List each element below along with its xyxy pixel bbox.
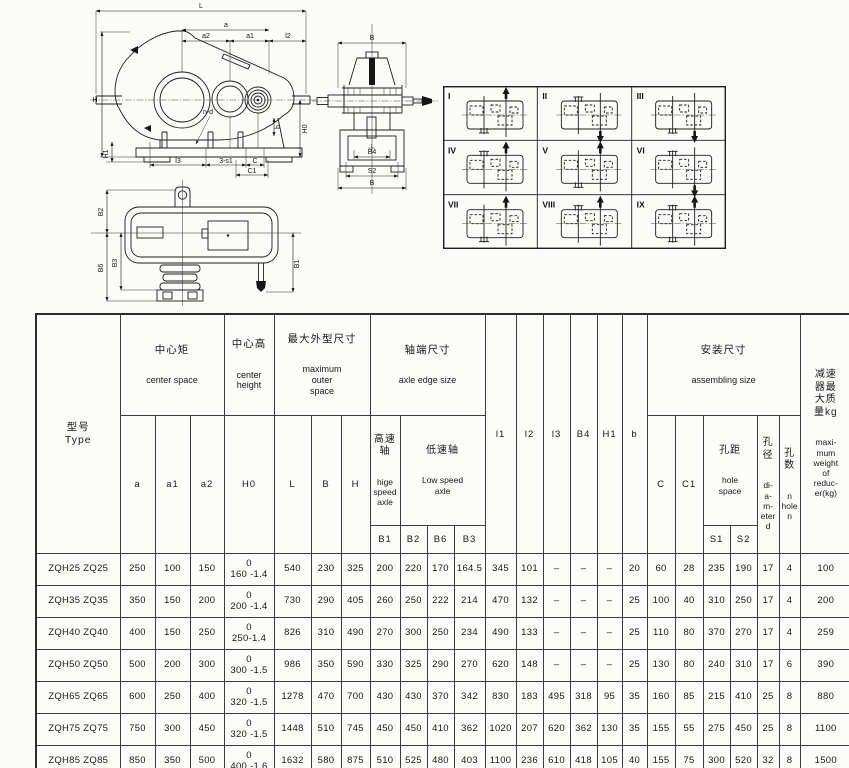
th-max-outer-zh: 最大外型尺寸 xyxy=(276,333,369,346)
th-axle-edge: 轴端尺寸 axle edge size xyxy=(370,314,485,415)
cell-a: 250 xyxy=(120,554,155,586)
cell-weight: 1100 xyxy=(800,714,849,746)
cell-n: 8 xyxy=(779,746,800,768)
shaft-arrow-icon xyxy=(599,203,602,208)
assembly-cell-shape xyxy=(699,216,707,222)
cell-s1: 310 xyxy=(703,586,730,618)
side-view-drawing: L a a2 a1 l2 H H1 H0 b n-d l3 3-s1 C C1 xyxy=(88,2,320,180)
dim-label-n-d: n-d xyxy=(203,109,213,116)
cell-l2: 101 xyxy=(516,554,543,586)
dim-label-B2: B2 xyxy=(98,208,105,217)
cell-h0: 0 200 -1.4 xyxy=(224,586,274,618)
assembly-cell-shape xyxy=(564,106,577,115)
cell-s1: 275 xyxy=(703,714,730,746)
th-C: C xyxy=(647,415,675,554)
cell-c1: 80 xyxy=(675,650,703,682)
assembly-cell-shape xyxy=(680,159,689,166)
cell-d: 25 xyxy=(757,682,779,714)
cell-c: 100 xyxy=(647,586,675,618)
th-h1: H1 xyxy=(597,314,622,554)
dim-label-B3: B3 xyxy=(112,259,119,268)
front-view-drawing: B B4 S2 B xyxy=(312,18,438,198)
cell-d: 17 xyxy=(757,554,779,586)
cell-l1: 1020 xyxy=(485,714,516,746)
cell-b6: 410 xyxy=(427,714,454,746)
shaft-arrow-icon xyxy=(693,185,696,190)
assembly-cell-shape xyxy=(498,116,512,125)
th-hole-diameter-en: di- a- m- eter d xyxy=(759,480,778,531)
cell-b2: 450 xyxy=(400,714,427,746)
cell-l1: 490 xyxy=(485,618,516,650)
th-assembling: 安装尺寸 assembling size xyxy=(647,314,800,415)
assembly-cell-shape xyxy=(680,105,689,112)
cell-b4: – xyxy=(570,554,597,586)
shaft-arrow-icon xyxy=(597,141,604,148)
cell-b2: 430 xyxy=(400,682,427,714)
dim-label-H: H xyxy=(92,97,97,104)
cell-s2: 520 xyxy=(730,746,757,768)
th-hole-count: 孔 数 n hole n xyxy=(779,415,800,554)
cell-b3: 270 xyxy=(454,650,485,682)
cell-a1: 300 xyxy=(155,714,190,746)
cell-B: 580 xyxy=(311,746,341,768)
assembly-cell-shape xyxy=(564,160,577,169)
th-center-height: 中心高 center height xyxy=(224,314,274,415)
cell-b2: 220 xyxy=(400,554,427,586)
cell-n: 8 xyxy=(779,714,800,746)
cell-b6: 222 xyxy=(427,586,454,618)
shaft-arrow-icon xyxy=(691,136,698,143)
cell-a: 500 xyxy=(120,650,155,682)
assembly-cell-shape xyxy=(592,225,606,234)
cell-n: 4 xyxy=(779,618,800,650)
cell-c1: 75 xyxy=(675,746,703,768)
cell-b6: 290 xyxy=(427,650,454,682)
cell-b: 25 xyxy=(622,650,647,682)
cell-s1: 300 xyxy=(703,746,730,768)
cell-l2: 148 xyxy=(516,650,543,682)
housing-outline xyxy=(115,31,294,140)
th-center-height-en: center height xyxy=(226,370,273,392)
assembly-cell-shape xyxy=(680,214,689,221)
th-low-speed-zh: 低速轴 xyxy=(402,445,484,458)
assembly-cell-shape xyxy=(491,214,500,221)
dim-label-B1: B1 xyxy=(294,260,301,269)
th-b3: B3 xyxy=(454,526,485,554)
cell-b1: 450 xyxy=(370,714,400,746)
shaft-arrow-icon xyxy=(693,203,696,208)
assembly-cell-label: IX xyxy=(637,200,645,210)
cell-c: 60 xyxy=(647,554,675,586)
dim-label-a: a xyxy=(224,22,228,29)
cell-b4: 418 xyxy=(570,746,597,768)
th-weight: 减速 器最 大质 量kg maxi- mum weight of reduc- … xyxy=(800,314,849,554)
cell-s2: 450 xyxy=(730,714,757,746)
th-l3: l3 xyxy=(543,314,570,554)
th-hole-space: 孔距 hole space xyxy=(703,415,757,526)
cell-l3: – xyxy=(543,618,570,650)
assembly-cell-shape xyxy=(604,161,612,167)
cell-L: 730 xyxy=(274,586,311,618)
cell-b3: 403 xyxy=(454,746,485,768)
th-high-speed: 高速 轴 hige speed axle xyxy=(370,415,400,526)
cell-b2: 250 xyxy=(400,586,427,618)
shaft-arrow-icon xyxy=(597,196,604,203)
cell-b4: 318 xyxy=(570,682,597,714)
shaft-arrow-icon xyxy=(693,131,696,136)
cell-L: 1632 xyxy=(274,746,311,768)
cell-a1: 200 xyxy=(155,650,190,682)
cell-b6: 170 xyxy=(427,554,454,586)
cell-b2: 525 xyxy=(400,746,427,768)
cell-h1: – xyxy=(597,554,622,586)
cell-type: ZQH65 ZQ65 xyxy=(36,682,120,714)
cell-l3: – xyxy=(543,554,570,586)
th-b1: B1 xyxy=(370,526,400,554)
cell-a2: 500 xyxy=(190,746,224,768)
th-hole-count-en: n hole n xyxy=(781,491,799,522)
shaft-arrow-icon xyxy=(599,131,602,136)
assembly-cell-label: V xyxy=(542,145,548,155)
cell-B: 290 xyxy=(311,586,341,618)
cell-l1: 470 xyxy=(485,586,516,618)
assembly-cell-shape xyxy=(498,225,512,234)
cell-l3: 495 xyxy=(543,682,570,714)
cell-n: 6 xyxy=(779,650,800,682)
cell-type: ZQH40 ZQ40 xyxy=(36,618,120,650)
cell-n: 4 xyxy=(779,554,800,586)
th-center-space-zh: 中心矩 xyxy=(122,344,223,357)
cell-b1: 510 xyxy=(370,746,400,768)
th-b4: B4 xyxy=(570,314,597,554)
assembly-position-grid: IIIIIIIVVVIVIIVIIIIX xyxy=(443,86,726,249)
cell-a1: 150 xyxy=(155,618,190,650)
cell-B: 230 xyxy=(311,554,341,586)
cell-a2: 150 xyxy=(190,554,224,586)
cell-b6: 250 xyxy=(427,618,454,650)
cell-b4: – xyxy=(570,586,597,618)
assembly-cell-shape xyxy=(659,215,672,224)
assembly-cell-label: I xyxy=(448,91,450,101)
th-weight-en: maxi- mum weight of reduc- er(kg) xyxy=(802,437,849,498)
assembly-cell-shape xyxy=(564,215,577,224)
th-B: B xyxy=(311,415,341,554)
th-type-label: 型号 Type xyxy=(38,421,119,447)
cell-b: 25 xyxy=(622,618,647,650)
th-b: b xyxy=(622,314,647,554)
cell-L: 1448 xyxy=(274,714,311,746)
assembly-cell-shape xyxy=(604,107,612,113)
dim-label-H1: H1 xyxy=(103,149,110,158)
dim-label-C1: C1 xyxy=(248,168,257,175)
th-h0: H0 xyxy=(224,415,274,554)
cell-d: 32 xyxy=(757,746,779,768)
cell-h0: 0 320 -1.5 xyxy=(224,714,274,746)
th-center-height-zh: 中心高 xyxy=(226,338,273,351)
cell-l3: – xyxy=(543,650,570,682)
assembly-cell-shape xyxy=(687,170,701,179)
shaft-arrow-icon xyxy=(505,94,508,99)
cell-weight: 100 xyxy=(800,554,849,586)
dim-label-B-top: B xyxy=(370,35,375,42)
cell-b: 20 xyxy=(622,554,647,586)
cell-s2: 410 xyxy=(730,682,757,714)
cell-H: 590 xyxy=(341,650,370,682)
assembly-cell-shape xyxy=(592,116,606,125)
cell-l2: 207 xyxy=(516,714,543,746)
cell-a: 350 xyxy=(120,586,155,618)
th-high-speed-zh: 高速 轴 xyxy=(372,434,399,459)
cell-b2: 300 xyxy=(400,618,427,650)
assembly-cell-shape xyxy=(592,170,606,179)
cell-c: 155 xyxy=(647,746,675,768)
dim-label-l3: l3 xyxy=(175,158,181,165)
cell-l3: 620 xyxy=(543,714,570,746)
cell-h0: 0 320 -1.5 xyxy=(224,682,274,714)
shaft-arrow-icon xyxy=(505,148,508,153)
cell-a1: 100 xyxy=(155,554,190,586)
assembly-cell-shape xyxy=(470,106,483,115)
cell-type: ZQH35 ZQ35 xyxy=(36,586,120,618)
cell-h1: 130 xyxy=(597,714,622,746)
cell-type: ZQH25 ZQ25 xyxy=(36,554,120,586)
dim-label-B-bottom: B xyxy=(370,180,375,187)
th-hole-count-zh: 孔 数 xyxy=(781,448,799,473)
cell-b3: 234 xyxy=(454,618,485,650)
table-row: ZQH40 ZQ404001502500 250-1.4826310490270… xyxy=(36,618,849,650)
cell-b3: 342 xyxy=(454,682,485,714)
cell-a1: 350 xyxy=(155,746,190,768)
cell-a: 750 xyxy=(120,714,155,746)
spec-table: 型号 Type 中心矩 center space 中心高 center heig… xyxy=(35,313,849,768)
cell-weight: 259 xyxy=(800,618,849,650)
th-assembling-en: assembling size xyxy=(649,375,799,386)
cell-l1: 345 xyxy=(485,554,516,586)
cell-l3: 610 xyxy=(543,746,570,768)
dim-label-b: b xyxy=(275,125,282,129)
cell-s2: 310 xyxy=(730,650,757,682)
assembly-cell-shape xyxy=(659,106,672,115)
cell-h0: 0 300 -1.5 xyxy=(224,650,274,682)
assembly-cell-shape xyxy=(585,159,594,166)
cell-l2: 132 xyxy=(516,586,543,618)
shaft-arrow-icon xyxy=(503,196,510,203)
th-center-space: 中心矩 center space xyxy=(120,314,224,415)
cell-a2: 400 xyxy=(190,682,224,714)
assembly-cell-label: VIII xyxy=(542,200,555,210)
cell-weight: 1500 xyxy=(800,746,849,768)
assembly-cell-shape xyxy=(659,160,672,169)
cell-b4: – xyxy=(570,618,597,650)
cell-weight: 200 xyxy=(800,586,849,618)
cell-c1: 40 xyxy=(675,586,703,618)
th-hole-diameter-zh: 孔 径 xyxy=(759,437,778,462)
cell-a1: 250 xyxy=(155,682,190,714)
th-a: a xyxy=(120,415,155,554)
shaft-arrow-icon xyxy=(505,203,508,208)
cell-B: 510 xyxy=(311,714,341,746)
cell-b3: 164.5 xyxy=(454,554,485,586)
assembly-cell-label: II xyxy=(542,91,547,101)
cell-b4: 362 xyxy=(570,714,597,746)
cell-l2: 236 xyxy=(516,746,543,768)
th-low-speed-en: Low speed axle xyxy=(402,475,484,495)
th-assembling-zh: 安装尺寸 xyxy=(649,344,799,357)
th-l2: l2 xyxy=(516,314,543,554)
cell-n: 8 xyxy=(779,682,800,714)
th-axle-edge-zh: 轴端尺寸 xyxy=(372,344,484,357)
cell-b1: 200 xyxy=(370,554,400,586)
cell-L: 986 xyxy=(274,650,311,682)
th-L: L xyxy=(274,415,311,554)
assembly-cell-shape xyxy=(687,225,701,234)
th-low-speed: 低速轴 Low speed axle xyxy=(400,415,485,526)
th-hole-diameter: 孔 径 di- a- m- eter d xyxy=(757,415,779,554)
cell-h0: 0 250-1.4 xyxy=(224,618,274,650)
cell-b6: 480 xyxy=(427,746,454,768)
table-row: ZQH25 ZQ252501001500 160 -1.454023032520… xyxy=(36,554,849,586)
cell-c1: 80 xyxy=(675,618,703,650)
shaft-arrow-icon xyxy=(691,196,698,203)
cell-weight: 390 xyxy=(800,650,849,682)
assembly-cell-shape xyxy=(585,105,594,112)
assembly-cell-shape xyxy=(470,160,483,169)
cell-b1: 330 xyxy=(370,650,400,682)
dim-label-a2: a2 xyxy=(202,33,210,40)
cell-l3: – xyxy=(543,586,570,618)
cell-type: ZQH85 ZQ85 xyxy=(36,746,120,768)
cell-a2: 450 xyxy=(190,714,224,746)
cell-a: 600 xyxy=(120,682,155,714)
th-max-outer-en: maximum outer space xyxy=(276,364,369,396)
th-b6: B6 xyxy=(427,526,454,554)
assembly-cell-shape xyxy=(498,170,512,179)
cell-h1: – xyxy=(597,650,622,682)
cell-h0: 0 160 -1.4 xyxy=(224,554,274,586)
cell-b: 25 xyxy=(622,586,647,618)
cell-B: 470 xyxy=(311,682,341,714)
cell-c: 110 xyxy=(647,618,675,650)
th-high-speed-en: hige speed axle xyxy=(372,477,399,508)
cell-d: 25 xyxy=(757,714,779,746)
assembly-cell-shape xyxy=(699,107,707,113)
cell-b3: 362 xyxy=(454,714,485,746)
cell-h1: 105 xyxy=(597,746,622,768)
cell-s2: 270 xyxy=(730,618,757,650)
cell-d: 17 xyxy=(757,618,779,650)
th-s2: S2 xyxy=(730,526,757,554)
assembly-cell-shape xyxy=(699,161,707,167)
cell-b: 35 xyxy=(622,682,647,714)
cell-H: 875 xyxy=(341,746,370,768)
cell-l2: 183 xyxy=(516,682,543,714)
assembly-cell-shape xyxy=(470,215,483,224)
cell-a1: 150 xyxy=(155,586,190,618)
cell-a2: 250 xyxy=(190,618,224,650)
cell-l1: 620 xyxy=(485,650,516,682)
assembly-cell-label: III xyxy=(637,91,644,101)
cell-d: 17 xyxy=(757,650,779,682)
cell-type: ZQH75 ZQ75 xyxy=(36,714,120,746)
assembly-cell-shape xyxy=(491,159,500,166)
cell-L: 540 xyxy=(274,554,311,586)
th-a1: a1 xyxy=(155,415,190,554)
cell-B: 350 xyxy=(311,650,341,682)
th-hole-space-zh: 孔距 xyxy=(705,445,756,458)
th-s1: S1 xyxy=(703,526,730,554)
dim-label-S2: S2 xyxy=(368,168,377,175)
cell-c: 155 xyxy=(647,714,675,746)
cell-b2: 325 xyxy=(400,650,427,682)
dim-label-3-s1: 3-s1 xyxy=(219,158,233,165)
cell-H: 745 xyxy=(341,714,370,746)
th-b2: B2 xyxy=(400,526,427,554)
cell-s1: 235 xyxy=(703,554,730,586)
cell-b: 40 xyxy=(622,746,647,768)
table-row: ZQH35 ZQ353501502000 200 -1.473029040526… xyxy=(36,586,849,618)
assembly-cell-shape xyxy=(604,216,612,222)
cell-a2: 300 xyxy=(190,650,224,682)
th-l1: l1 xyxy=(485,314,516,554)
cell-c1: 55 xyxy=(675,714,703,746)
cell-h1: – xyxy=(597,586,622,618)
table-row: ZQH50 ZQ505002003000 300 -1.598635059033… xyxy=(36,650,849,682)
assembly-cell-shape xyxy=(510,216,518,222)
assembly-cell-label: VII xyxy=(448,200,458,210)
cell-b1: 260 xyxy=(370,586,400,618)
cell-B: 310 xyxy=(311,618,341,650)
cell-b: 35 xyxy=(622,714,647,746)
dim-label-L: L xyxy=(199,3,203,10)
shaft-arrow-icon xyxy=(503,141,510,148)
cell-s1: 240 xyxy=(703,650,730,682)
cell-a: 850 xyxy=(120,746,155,768)
table-row: ZQH85 ZQ858503505000 400 -1.616325808755… xyxy=(36,746,849,768)
dim-label-l2: l2 xyxy=(285,33,291,40)
cell-a2: 200 xyxy=(190,586,224,618)
dim-label-B6: B6 xyxy=(98,264,105,273)
cell-H: 325 xyxy=(341,554,370,586)
assembly-cell-shape xyxy=(510,161,518,167)
dim-label-H0: H0 xyxy=(302,124,309,133)
th-weight-zh: 减速 器最 大质 量kg xyxy=(802,369,849,419)
cell-s1: 215 xyxy=(703,682,730,714)
cell-s1: 370 xyxy=(703,618,730,650)
cell-L: 1278 xyxy=(274,682,311,714)
cell-l2: 133 xyxy=(516,618,543,650)
cell-c1: 85 xyxy=(675,682,703,714)
cell-n: 4 xyxy=(779,586,800,618)
cell-s2: 250 xyxy=(730,586,757,618)
assembly-cell-label: IV xyxy=(448,145,456,155)
dim-label-C: C xyxy=(252,158,257,165)
cell-H: 700 xyxy=(341,682,370,714)
cell-l1: 1100 xyxy=(485,746,516,768)
table-row: ZQH75 ZQ757503004500 320 -1.514485107454… xyxy=(36,714,849,746)
cell-H: 405 xyxy=(341,586,370,618)
cell-b4: – xyxy=(570,650,597,682)
assembly-cell-shape xyxy=(687,116,701,125)
shaft-arrow-icon xyxy=(599,148,602,153)
th-max-outer: 最大外型尺寸 maximum outer space xyxy=(274,314,370,415)
cell-s2: 190 xyxy=(730,554,757,586)
cell-h0: 0 400 -1.6 xyxy=(224,746,274,768)
cell-c1: 28 xyxy=(675,554,703,586)
table-row: ZQH65 ZQ656002504000 320 -1.512784707004… xyxy=(36,682,849,714)
cell-d: 17 xyxy=(757,586,779,618)
cell-L: 826 xyxy=(274,618,311,650)
catalog-page: L a a2 a1 l2 H H1 H0 b n-d l3 3-s1 C C1 xyxy=(0,0,849,768)
